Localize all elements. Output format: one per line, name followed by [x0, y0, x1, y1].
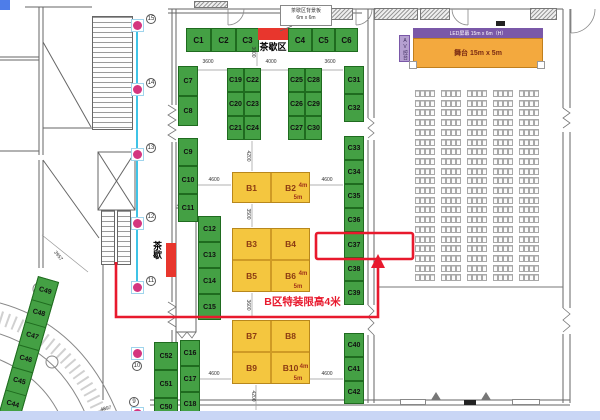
seat — [430, 158, 435, 165]
seat — [503, 100, 508, 107]
seat — [493, 148, 498, 155]
seat — [467, 168, 472, 175]
seat-row — [519, 216, 539, 223]
seat-row — [441, 245, 461, 252]
route-marker-number: 15 — [146, 14, 156, 24]
seat — [420, 187, 425, 194]
seat — [415, 168, 420, 175]
seat — [420, 274, 425, 281]
seat — [451, 274, 456, 281]
booth-C9: C9 — [178, 138, 198, 166]
booth-C10: C10 — [178, 166, 198, 194]
seat — [456, 168, 461, 175]
seat — [534, 255, 539, 262]
booth-B5: B5 — [232, 260, 271, 292]
seat — [425, 109, 430, 116]
booth-size-label: 5m — [294, 195, 303, 201]
seat — [467, 158, 472, 165]
seat — [529, 226, 534, 233]
seat — [472, 255, 477, 262]
seat — [415, 177, 420, 184]
seat — [493, 119, 498, 126]
seat — [477, 158, 482, 165]
seat — [529, 187, 534, 194]
route-marker-dot — [133, 349, 142, 358]
seat-row — [493, 177, 513, 184]
seat-row — [493, 206, 513, 213]
seat — [467, 197, 472, 204]
booth-C38: C38 — [344, 258, 364, 281]
seat — [415, 187, 420, 194]
seat — [441, 90, 446, 97]
seat — [430, 206, 435, 213]
seat — [493, 206, 498, 213]
seat-row — [415, 255, 435, 262]
seat-row — [467, 129, 487, 136]
seat — [456, 90, 461, 97]
seat — [508, 148, 513, 155]
seat — [482, 177, 487, 184]
booth-C29: C29 — [305, 92, 322, 116]
seat-row — [415, 187, 435, 194]
seat-row — [441, 226, 461, 233]
seat — [498, 216, 503, 223]
seat — [534, 265, 539, 272]
seat — [508, 177, 513, 184]
seat — [446, 168, 451, 175]
seat — [472, 216, 477, 223]
seat — [524, 236, 529, 243]
seat-row — [467, 90, 487, 97]
seat — [446, 158, 451, 165]
seat — [467, 265, 472, 272]
seat-row — [519, 109, 539, 116]
seat — [529, 90, 534, 97]
seat — [425, 197, 430, 204]
seat — [415, 274, 420, 281]
seat — [534, 148, 539, 155]
wall-fixture — [400, 399, 426, 405]
seat-row — [493, 168, 513, 175]
seat — [519, 265, 524, 272]
seat — [467, 236, 472, 243]
seat — [451, 245, 456, 252]
seat — [446, 274, 451, 281]
seat — [430, 255, 435, 262]
booth-C17: C17 — [180, 366, 200, 392]
seat — [451, 158, 456, 165]
seat — [493, 100, 498, 107]
seat — [534, 216, 539, 223]
seat — [482, 197, 487, 204]
seat — [456, 187, 461, 194]
seat — [420, 216, 425, 223]
seat — [430, 245, 435, 252]
seat — [415, 129, 420, 136]
booth-size-label: 5m — [294, 376, 303, 382]
seat — [498, 274, 503, 281]
seat — [524, 100, 529, 107]
seat — [508, 197, 513, 204]
seat — [456, 177, 461, 184]
seat — [425, 206, 430, 213]
seat — [519, 90, 524, 97]
route-marker-14 — [131, 83, 144, 96]
seat — [472, 100, 477, 107]
seat-row — [415, 158, 435, 165]
booth-size-label: 4m — [300, 364, 309, 370]
seat — [472, 148, 477, 155]
seat — [430, 119, 435, 126]
seat — [420, 236, 425, 243]
seat — [477, 216, 482, 223]
seat — [456, 109, 461, 116]
seat-row — [441, 265, 461, 272]
booth-C36: C36 — [344, 208, 364, 232]
seat — [446, 129, 451, 136]
seat-row — [519, 148, 539, 155]
seat — [529, 236, 534, 243]
seat — [524, 265, 529, 272]
seat — [477, 168, 482, 175]
seat — [456, 139, 461, 146]
av-console-label: AV控台 — [402, 38, 407, 60]
seat — [529, 265, 534, 272]
seat — [420, 265, 425, 272]
seat — [430, 226, 435, 233]
seat — [519, 245, 524, 252]
seat-row — [467, 158, 487, 165]
booth-C19: C19 — [227, 68, 244, 92]
seat — [519, 216, 524, 223]
seat — [425, 177, 430, 184]
seat — [456, 158, 461, 165]
seat-row — [415, 274, 435, 281]
seat — [446, 236, 451, 243]
seat — [498, 187, 503, 194]
seat — [498, 109, 503, 116]
seat — [420, 197, 425, 204]
seat — [456, 236, 461, 243]
seat — [425, 226, 430, 233]
seat — [430, 265, 435, 272]
seat — [529, 197, 534, 204]
seat — [529, 109, 534, 116]
seat — [441, 119, 446, 126]
tea-break-area-label: 茶歇区 — [252, 40, 294, 53]
seat-row — [519, 265, 539, 272]
seat-row — [519, 206, 539, 213]
seat-row — [493, 100, 513, 107]
seat — [529, 129, 534, 136]
seat — [451, 236, 456, 243]
seat — [441, 216, 446, 223]
seat-row — [493, 226, 513, 233]
seat — [467, 206, 472, 213]
route-marker-number: 12 — [146, 212, 156, 222]
seat — [519, 168, 524, 175]
booth-C1: C1 — [186, 28, 211, 52]
seat — [493, 109, 498, 116]
seat — [498, 148, 503, 155]
seat-row — [467, 197, 487, 204]
seat — [503, 139, 508, 146]
seat — [420, 245, 425, 252]
seat — [446, 148, 451, 155]
seat — [451, 90, 456, 97]
seat — [503, 236, 508, 243]
seat — [493, 177, 498, 184]
seat-row — [493, 148, 513, 155]
booth-C22: C22 — [244, 68, 261, 92]
seat — [493, 216, 498, 223]
seat — [534, 109, 539, 116]
seat — [503, 168, 508, 175]
seat — [420, 148, 425, 155]
seat — [451, 265, 456, 272]
seat — [534, 139, 539, 146]
seat — [425, 148, 430, 155]
booth-B9: B9 — [232, 352, 271, 384]
seat — [508, 236, 513, 243]
route-marker-15 — [131, 19, 144, 32]
seat — [441, 148, 446, 155]
seat-row — [415, 148, 435, 155]
seat — [456, 255, 461, 262]
booth-C34: C34 — [344, 160, 364, 184]
seat — [472, 158, 477, 165]
av-console: AV控台 — [399, 35, 410, 62]
seat-row — [441, 206, 461, 213]
seat — [498, 100, 503, 107]
seat — [472, 90, 477, 97]
seat — [503, 274, 508, 281]
seat — [519, 274, 524, 281]
seat-row — [415, 236, 435, 243]
seat-row — [493, 265, 513, 272]
seat — [498, 177, 503, 184]
seat — [529, 177, 534, 184]
seat — [441, 274, 446, 281]
seat — [415, 216, 420, 223]
seat — [477, 129, 482, 136]
seat-row — [441, 216, 461, 223]
seat — [467, 90, 472, 97]
booth-B3: B3 — [232, 228, 271, 260]
seat — [425, 255, 430, 262]
seat-row — [519, 255, 539, 262]
seat — [508, 109, 513, 116]
seat — [493, 255, 498, 262]
seat — [420, 226, 425, 233]
booth-C41: C41 — [344, 357, 364, 381]
seat — [482, 168, 487, 175]
seat — [467, 148, 472, 155]
seat — [524, 148, 529, 155]
seat — [472, 129, 477, 136]
seat — [529, 274, 534, 281]
booth-C32: C32 — [344, 94, 364, 122]
seat — [524, 197, 529, 204]
seat-row — [415, 109, 435, 116]
seat — [420, 206, 425, 213]
seat — [441, 158, 446, 165]
seat — [482, 100, 487, 107]
dimension-label: 4600 — [208, 371, 219, 377]
seat — [534, 168, 539, 175]
stage-step — [537, 61, 545, 69]
seat — [498, 119, 503, 126]
seat — [524, 177, 529, 184]
seat — [441, 255, 446, 262]
seat — [503, 245, 508, 252]
seat — [467, 100, 472, 107]
seat-row — [467, 139, 487, 146]
seat-row — [415, 168, 435, 175]
route-marker-dot — [133, 219, 142, 228]
tea-break-area-side — [166, 243, 176, 277]
seat — [482, 129, 487, 136]
seat — [482, 226, 487, 233]
dimension-label: 3600 — [202, 59, 213, 65]
seat-row — [467, 177, 487, 184]
seat-row — [415, 139, 435, 146]
seat — [415, 265, 420, 272]
route-marker-dot — [133, 283, 142, 292]
seat — [425, 119, 430, 126]
seat — [415, 236, 420, 243]
dimension-label: 4600 — [208, 177, 219, 183]
seat — [472, 274, 477, 281]
seat — [456, 216, 461, 223]
seat — [519, 129, 524, 136]
booth-C21: C21 — [227, 116, 244, 140]
seat-row — [519, 129, 539, 136]
dimension-label: 4000 — [265, 59, 276, 65]
seat — [430, 168, 435, 175]
seat — [503, 216, 508, 223]
seat — [534, 197, 539, 204]
booth-C28: C28 — [305, 68, 322, 92]
seat — [493, 197, 498, 204]
seat — [430, 274, 435, 281]
seat — [456, 148, 461, 155]
seat — [441, 100, 446, 107]
booth-C15: C15 — [198, 294, 221, 320]
seat — [498, 206, 503, 213]
seat — [493, 187, 498, 194]
seat — [415, 245, 420, 252]
seat — [482, 90, 487, 97]
seat — [477, 245, 482, 252]
seat-row — [441, 158, 461, 165]
seat — [529, 148, 534, 155]
seat-row — [493, 216, 513, 223]
seat — [456, 100, 461, 107]
seat — [524, 226, 529, 233]
seat — [446, 226, 451, 233]
seat — [482, 236, 487, 243]
seat — [451, 216, 456, 223]
seat-row — [467, 187, 487, 194]
seat — [451, 226, 456, 233]
seat — [503, 255, 508, 262]
seat-row — [441, 236, 461, 243]
seat — [529, 119, 534, 126]
seat — [482, 119, 487, 126]
seat — [472, 197, 477, 204]
seat-row — [441, 119, 461, 126]
seat-row — [519, 187, 539, 194]
seat-row — [441, 187, 461, 194]
seat — [446, 197, 451, 204]
seat — [441, 265, 446, 272]
seat — [467, 187, 472, 194]
seat-row — [441, 100, 461, 107]
seat — [524, 187, 529, 194]
booth-C27: C27 — [288, 116, 305, 140]
seat — [524, 109, 529, 116]
door-marker — [481, 392, 491, 400]
seat — [472, 206, 477, 213]
seat-row — [415, 119, 435, 126]
booth-C5: C5 — [312, 28, 335, 52]
floor-plan: C1C2C3C4C5C6C7C8C9C10C11C12C13C14C15C16C… — [0, 0, 600, 420]
seat — [534, 274, 539, 281]
seat-row — [441, 90, 461, 97]
seat — [503, 177, 508, 184]
seat — [430, 236, 435, 243]
seat — [508, 216, 513, 223]
seat — [482, 187, 487, 194]
seat — [503, 197, 508, 204]
seat — [524, 90, 529, 97]
seat — [467, 274, 472, 281]
seat — [477, 109, 482, 116]
booth-C23: C23 — [244, 92, 261, 116]
seat — [477, 139, 482, 146]
seat — [425, 129, 430, 136]
seat-row — [493, 129, 513, 136]
seat — [524, 245, 529, 252]
seat — [430, 129, 435, 136]
booth-C6: C6 — [335, 28, 358, 52]
seat — [420, 109, 425, 116]
seat — [524, 168, 529, 175]
seat — [456, 274, 461, 281]
seat-row — [493, 158, 513, 165]
seat — [441, 197, 446, 204]
seat — [534, 177, 539, 184]
seat — [472, 109, 477, 116]
seat-row — [493, 139, 513, 146]
seat — [534, 187, 539, 194]
seat — [451, 197, 456, 204]
bottom-bar — [0, 411, 600, 420]
seat — [477, 255, 482, 262]
seat — [503, 90, 508, 97]
seat — [508, 158, 513, 165]
seat — [430, 100, 435, 107]
seat — [420, 100, 425, 107]
booth-C40: C40 — [344, 333, 364, 357]
dimension-label: 4200 — [245, 150, 251, 161]
seat — [498, 226, 503, 233]
seat — [456, 206, 461, 213]
wall-fixture — [512, 399, 540, 405]
seat-row — [415, 197, 435, 204]
seat-row — [415, 129, 435, 136]
